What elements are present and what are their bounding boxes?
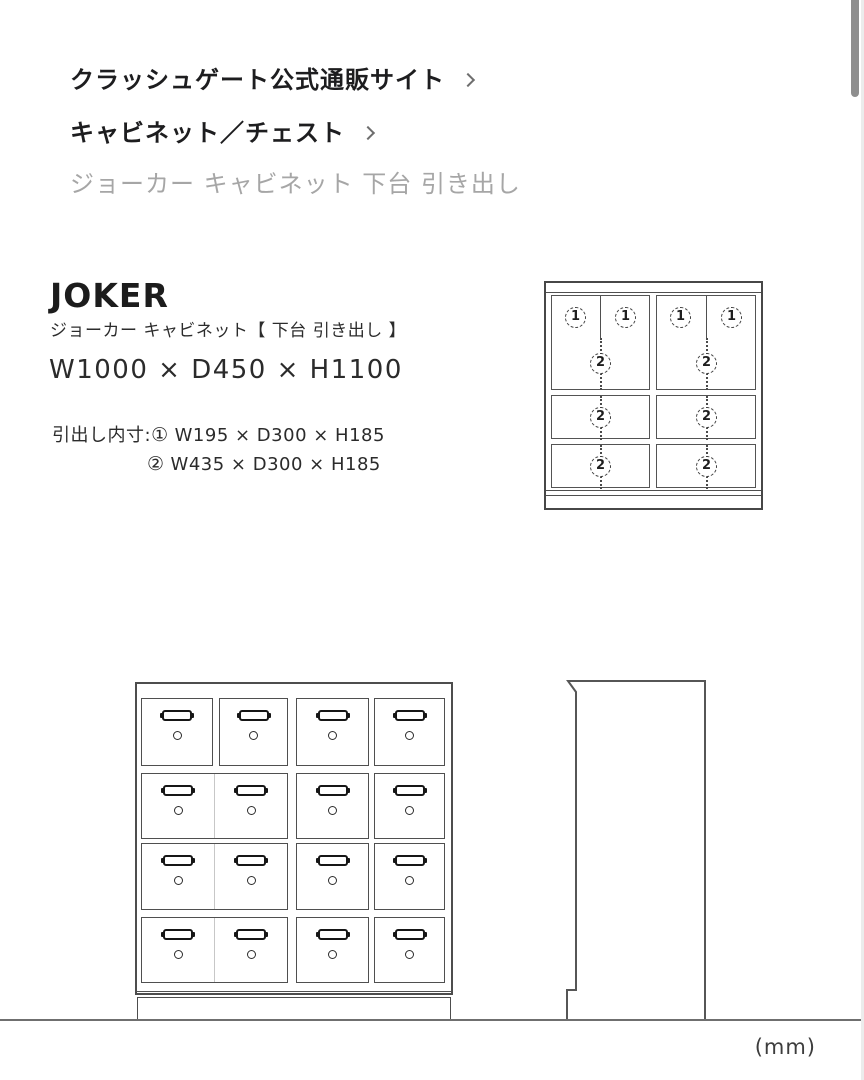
drawer-handle-icon bbox=[236, 855, 266, 866]
diagram-line bbox=[600, 296, 601, 338]
drawer-knob-icon bbox=[405, 876, 414, 885]
side-view-diagram bbox=[558, 676, 710, 1024]
drawer-handle-icon bbox=[236, 929, 266, 940]
drawer-spec-size: W195 × D300 × H185 bbox=[175, 425, 385, 446]
drawer-face bbox=[374, 843, 445, 910]
drawer-handle-icon bbox=[163, 855, 193, 866]
drawer-marker-2: 2 bbox=[696, 407, 717, 428]
drawer-face-wide bbox=[141, 843, 288, 910]
breadcrumb-label: ジョーカー キャビネット 下台 引き出し bbox=[70, 170, 521, 198]
drawer-specs: 引出し内寸:①W195 × D300 × H185 ②W435 × D300 ×… bbox=[52, 421, 385, 485]
drawer-marker-1: 1 bbox=[565, 307, 586, 328]
diagram-section: 2 bbox=[551, 395, 650, 439]
drawer-handle-icon bbox=[318, 855, 348, 866]
chevron-right-icon bbox=[461, 73, 475, 87]
drawer-knob-icon bbox=[247, 876, 256, 885]
drawer-marker-2: 2 bbox=[590, 407, 611, 428]
drawer-face bbox=[374, 698, 445, 766]
drawer-spec-size: W435 × D300 × H185 bbox=[171, 454, 381, 475]
diagram-section: 2 bbox=[656, 444, 756, 488]
diagram-line bbox=[706, 296, 707, 338]
drawer-knob-icon bbox=[328, 731, 337, 740]
drawer-knob-icon bbox=[174, 876, 183, 885]
breadcrumb-label[interactable]: クラッシュゲート公式通販サイト bbox=[70, 66, 445, 94]
overall-dimensions: W1000 × D450 × H1100 bbox=[49, 355, 403, 385]
drawer-handle-icon bbox=[163, 929, 193, 940]
drawer-knob-icon bbox=[405, 731, 414, 740]
page: { "breadcrumb": { "items": [ { "label": … bbox=[0, 0, 864, 1080]
drawer-handle-icon bbox=[318, 929, 348, 940]
diagram-section: 2 bbox=[551, 444, 650, 488]
drawer-spec-row: ②W435 × D300 × H185 bbox=[52, 453, 385, 485]
drawer-marker-1: 1 bbox=[670, 307, 691, 328]
drawer-knob-icon bbox=[174, 806, 183, 815]
drawer-handle-icon bbox=[395, 710, 425, 721]
unit-label: (mm) bbox=[728, 1035, 816, 1059]
drawer-handle-icon bbox=[318, 710, 348, 721]
diagram-section: 2 bbox=[656, 395, 756, 439]
drawer-face bbox=[141, 698, 213, 766]
drawer-face bbox=[296, 698, 369, 766]
drawer-spec-marker: ② bbox=[147, 453, 165, 475]
product-subtitle: ジョーカー キャビネット【 下台 引き出し 】 bbox=[50, 316, 406, 341]
breadcrumb-item-site[interactable]: クラッシュゲート公式通販サイト bbox=[70, 60, 473, 95]
scrollbar-thumb[interactable] bbox=[851, 0, 859, 97]
diagram-line bbox=[546, 490, 761, 491]
drawer-knob-icon bbox=[247, 950, 256, 959]
drawer-handle-icon bbox=[395, 855, 425, 866]
drawer-handle-icon bbox=[162, 710, 192, 721]
top-view-diagram: 1 1 2 1 1 2 2 2 2 2 bbox=[544, 281, 763, 510]
drawer-face bbox=[296, 917, 369, 983]
drawer-knob-icon bbox=[328, 876, 337, 885]
drawer-face-wide bbox=[141, 773, 288, 839]
drawer-knob-icon bbox=[405, 950, 414, 959]
drawer-handle-icon bbox=[395, 929, 425, 940]
drawer-knob-icon bbox=[249, 731, 258, 740]
drawer-knob-icon bbox=[247, 806, 256, 815]
diagram-section: 1 1 2 bbox=[551, 295, 650, 390]
drawer-marker-2: 2 bbox=[590, 456, 611, 477]
drawer-knob-icon bbox=[173, 731, 182, 740]
diagram-section: 1 1 2 bbox=[656, 295, 756, 390]
drawer-marker-2: 2 bbox=[696, 456, 717, 477]
drawer-face bbox=[296, 843, 369, 910]
drawer-handle-icon bbox=[395, 785, 425, 796]
diagram-line bbox=[546, 292, 761, 293]
drawer-marker-2: 2 bbox=[696, 353, 717, 374]
drawer-spec-row: 引出し内寸:①W195 × D300 × H185 bbox=[52, 421, 385, 453]
front-view-plinth bbox=[137, 997, 451, 1020]
drawer-handle-icon bbox=[318, 785, 348, 796]
ground-line bbox=[0, 1019, 864, 1021]
drawer-handle-icon bbox=[239, 710, 269, 721]
drawer-handle-icon bbox=[236, 785, 266, 796]
breadcrumb-item-category[interactable]: キャビネット／チェスト bbox=[70, 113, 373, 148]
drawer-face-wide bbox=[141, 917, 288, 983]
drawer-knob-icon bbox=[328, 806, 337, 815]
drawer-handle-icon bbox=[163, 785, 193, 796]
drawer-face bbox=[296, 773, 369, 839]
drawer-face bbox=[374, 917, 445, 983]
breadcrumb-label[interactable]: キャビネット／チェスト bbox=[70, 119, 345, 147]
drawer-knob-icon bbox=[328, 950, 337, 959]
drawer-face bbox=[374, 773, 445, 839]
drawer-knob-icon bbox=[405, 806, 414, 815]
breadcrumb-item-current: ジョーカー キャビネット 下台 引き出し bbox=[70, 164, 521, 199]
drawer-marker-1: 1 bbox=[615, 307, 636, 328]
diagram-line bbox=[546, 495, 761, 496]
product-title: JOKER bbox=[50, 276, 169, 315]
drawer-spec-label: 引出し内寸: bbox=[52, 425, 151, 446]
chevron-right-icon bbox=[361, 126, 375, 140]
drawer-marker-1: 1 bbox=[721, 307, 742, 328]
diagram-line bbox=[137, 991, 451, 992]
drawer-spec-marker: ① bbox=[151, 424, 169, 446]
drawer-marker-2: 2 bbox=[590, 353, 611, 374]
drawer-knob-icon bbox=[174, 950, 183, 959]
drawer-face bbox=[219, 698, 288, 766]
front-view-diagram bbox=[135, 682, 453, 995]
